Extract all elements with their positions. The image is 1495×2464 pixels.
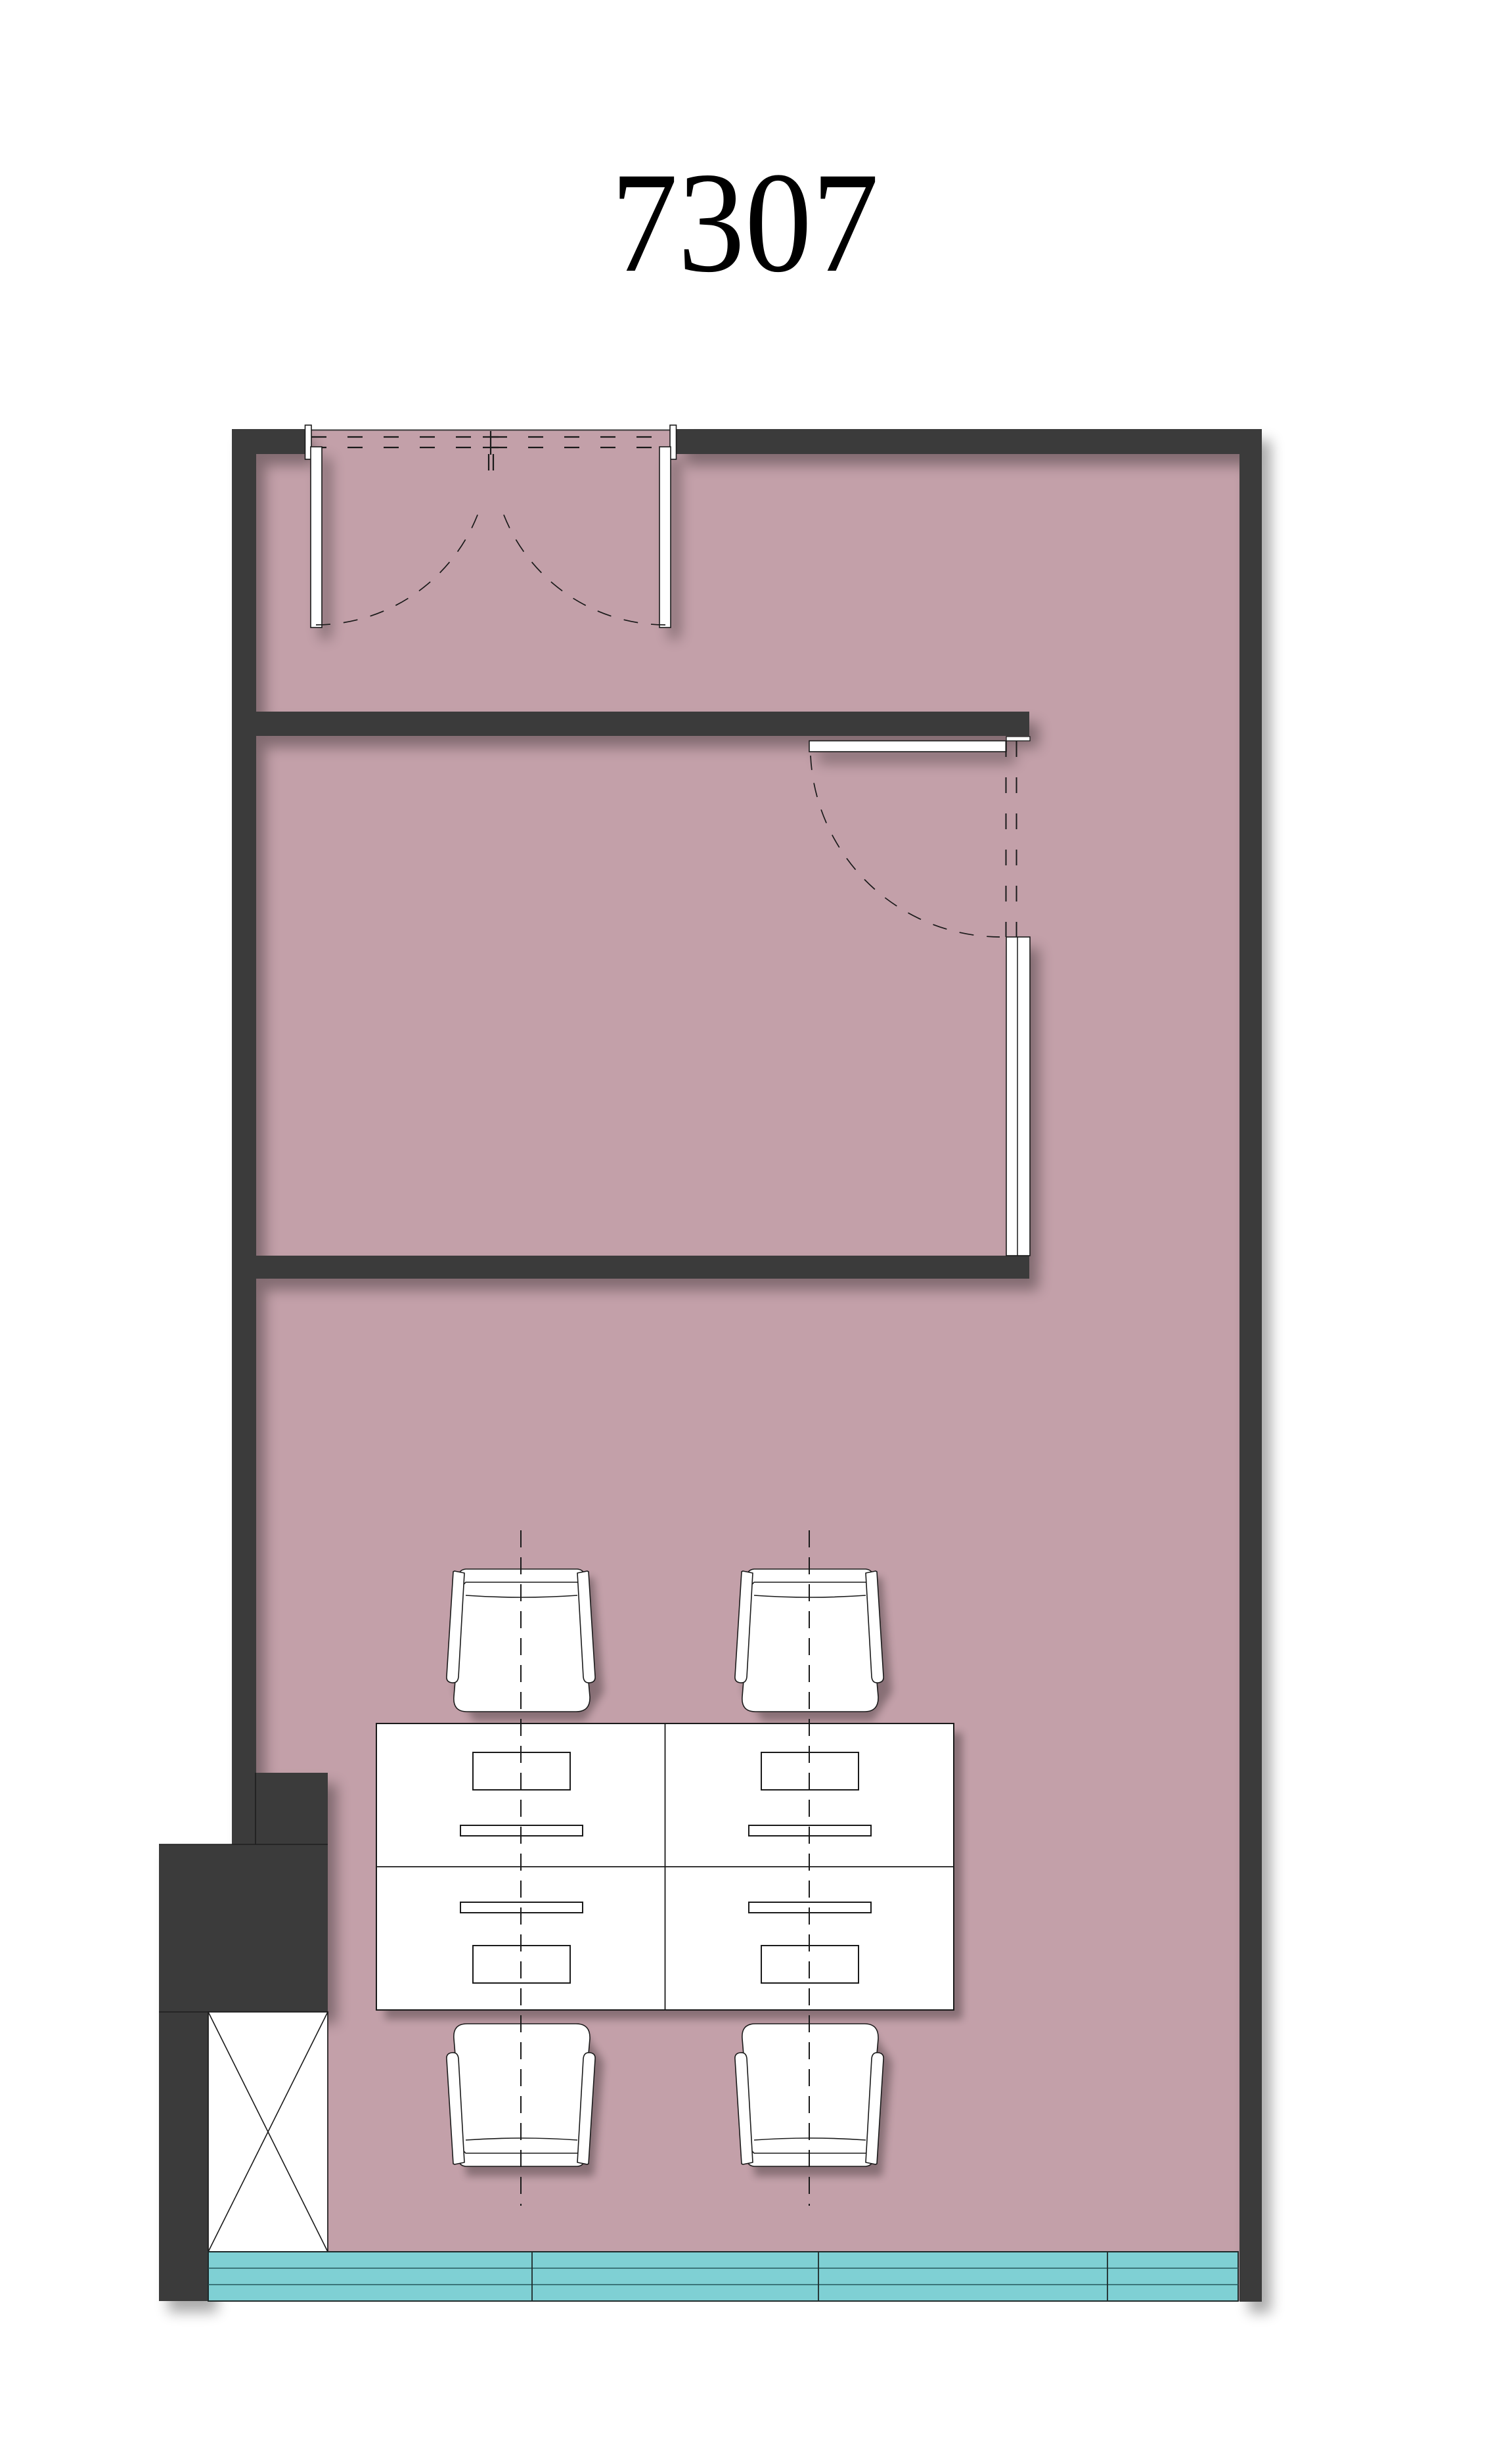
svg-text:7307: 7307 <box>611 143 879 302</box>
